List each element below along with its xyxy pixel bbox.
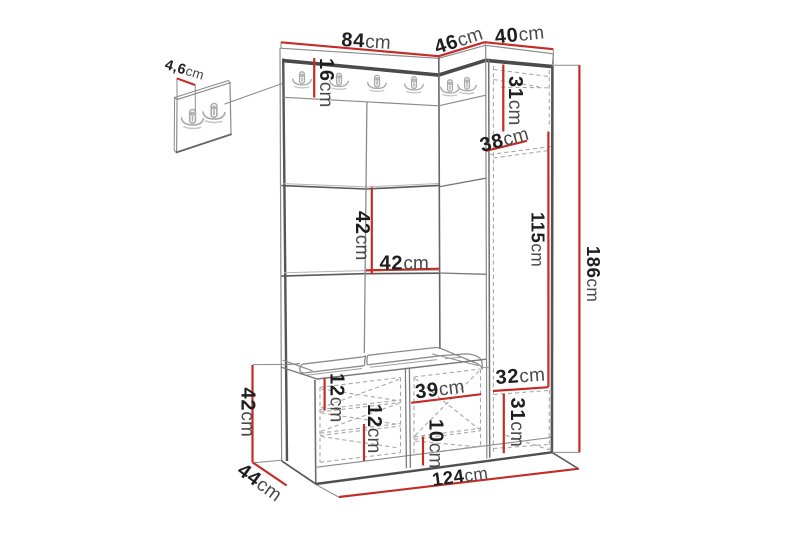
- svg-text:42cm: 42cm: [351, 211, 373, 261]
- svg-text:31cm: 31cm: [504, 76, 526, 126]
- svg-text:12cm: 12cm: [326, 373, 348, 423]
- svg-text:10cm: 10cm: [425, 419, 447, 469]
- svg-text:4,6cm: 4,6cm: [163, 57, 206, 84]
- svg-text:39cm: 39cm: [414, 376, 466, 404]
- svg-text:186cm: 186cm: [583, 246, 604, 302]
- svg-text:16cm: 16cm: [315, 58, 337, 108]
- svg-text:31cm: 31cm: [506, 398, 528, 448]
- svg-text:32cm: 32cm: [495, 364, 546, 389]
- svg-text:12cm: 12cm: [363, 404, 385, 454]
- svg-text:84cm: 84cm: [341, 29, 392, 54]
- svg-text:115cm: 115cm: [528, 212, 549, 267]
- svg-text:40cm: 40cm: [494, 21, 546, 48]
- svg-text:42cm: 42cm: [380, 252, 430, 274]
- svg-text:42cm: 42cm: [237, 388, 259, 438]
